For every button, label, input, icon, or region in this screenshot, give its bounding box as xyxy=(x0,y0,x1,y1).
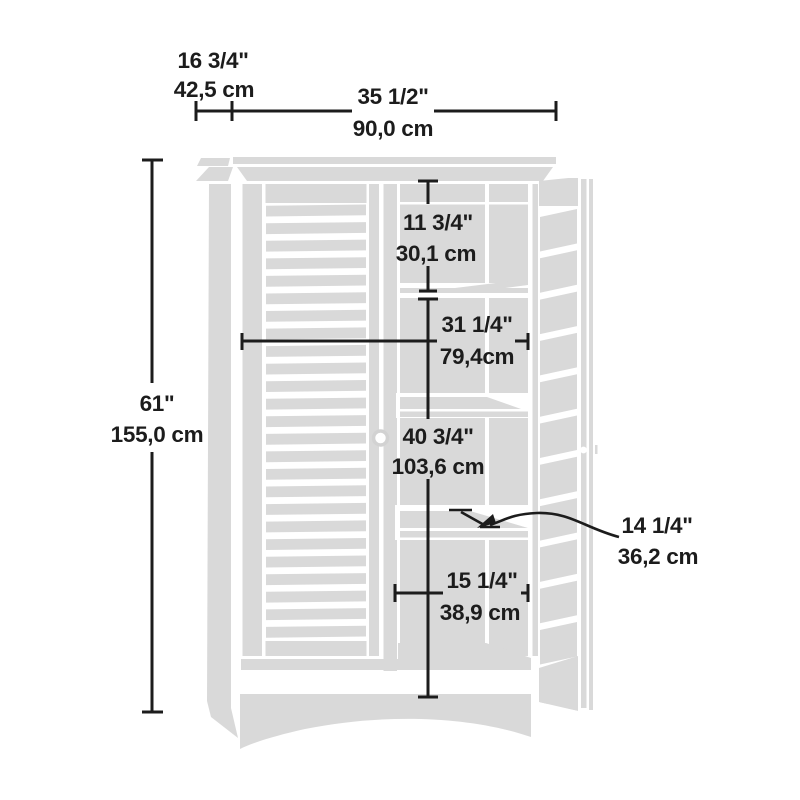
left-door-left-stile xyxy=(243,184,263,656)
width-metric-label: 90,0 cm xyxy=(353,116,433,141)
lower-compartment-metric-label: 103,6 cm xyxy=(392,454,485,479)
hinge-pin xyxy=(595,445,598,454)
right-door-inner-stile xyxy=(581,179,587,708)
bottom-compartment-imperial-label: 15 1/4" xyxy=(446,568,517,593)
shelf2-front-edge xyxy=(400,412,528,418)
left-door-top-rail xyxy=(266,184,367,203)
interior-top-seam xyxy=(400,202,528,205)
crown-molding xyxy=(237,167,553,181)
right-door-louvers xyxy=(540,209,577,706)
height-imperial-label: 61" xyxy=(140,391,175,416)
height-metric-label: 155,0 cm xyxy=(111,422,204,447)
left-side-panel xyxy=(207,184,238,738)
crown-top-board xyxy=(233,157,556,164)
interior-width-metric-label: 79,4cm xyxy=(440,344,515,369)
left-door-right-stile xyxy=(369,184,379,656)
shelf-depth-metric-label: 36,2 cm xyxy=(618,544,698,569)
front-bottom-rail xyxy=(241,659,531,670)
right-door-knob-dot xyxy=(580,447,587,454)
dimension-diagram: 16 3/4" 42,5 cm 35 1/2" 90,0 cm 61" 155,… xyxy=(0,0,800,800)
width-imperial-label: 35 1/2" xyxy=(357,84,428,109)
depth-imperial-label: 16 3/4" xyxy=(177,48,248,73)
left-door-louvers xyxy=(266,205,366,638)
upper-compartment-metric-label: 30,1 cm xyxy=(396,241,476,266)
depth-metric-label: 42,5 cm xyxy=(174,77,254,102)
crown-top-board-side xyxy=(197,158,230,166)
shelf-depth-imperial-label: 14 1/4" xyxy=(621,513,692,538)
right-door-bottom-rail xyxy=(539,656,578,711)
crown-molding-side xyxy=(196,167,233,181)
upper-compartment-imperial-label: 11 3/4" xyxy=(403,210,473,235)
right-door-top-rail xyxy=(539,178,578,206)
shelf3-front-edge xyxy=(400,531,528,538)
left-door-knob xyxy=(374,431,388,445)
bottom-compartment-metric-label: 38,9 cm xyxy=(440,600,520,625)
arched-base xyxy=(240,694,531,749)
right-door-edge xyxy=(589,179,593,710)
cabinet-line-drawing: 16 3/4" 42,5 cm 35 1/2" 90,0 cm 61" 155,… xyxy=(0,0,800,800)
interior-width-imperial-label: 31 1/4" xyxy=(441,312,512,337)
right-door-open xyxy=(539,178,578,711)
lower-compartment-imperial-label: 40 3/4" xyxy=(402,424,473,449)
right-front-stile xyxy=(533,184,539,656)
left-door-bottom-rail xyxy=(266,641,367,656)
